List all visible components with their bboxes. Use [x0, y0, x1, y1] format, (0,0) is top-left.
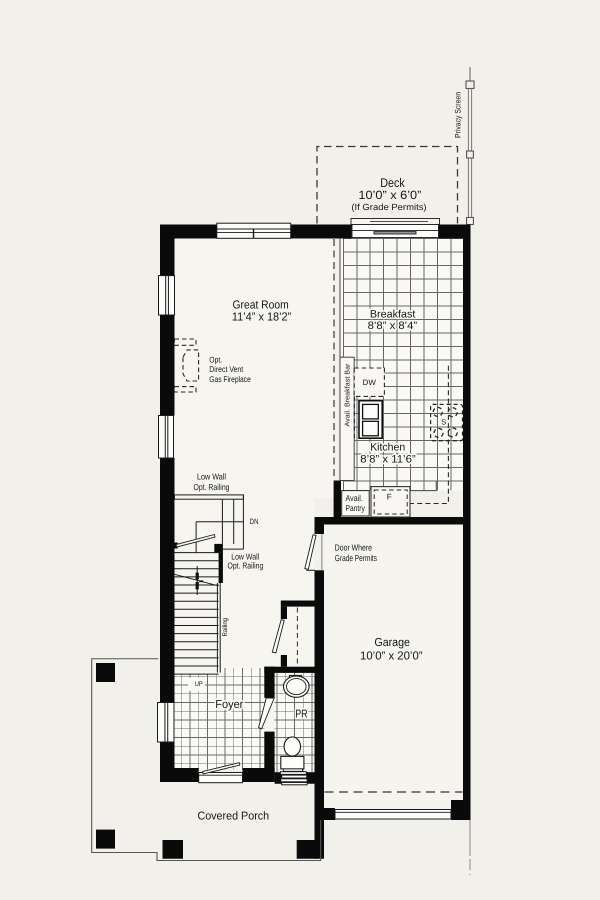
svg-text:Railing: Railing [222, 618, 229, 637]
svg-text:PR: PR [295, 709, 307, 721]
svg-text:S: S [441, 417, 446, 426]
svg-text:8’8” x 11’6”: 8’8” x 11’6” [360, 454, 416, 466]
svg-text:DW: DW [363, 378, 377, 387]
svg-text:Kitchen: Kitchen [370, 441, 405, 453]
svg-text:DN: DN [250, 517, 259, 526]
svg-text:F: F [387, 492, 392, 501]
svg-text:Pantry: Pantry [346, 503, 366, 513]
svg-text:Privacy Screen: Privacy Screen [454, 92, 463, 138]
svg-text:Gas Fireplace: Gas Fireplace [209, 374, 251, 384]
svg-text:Low Wall: Low Wall [197, 472, 226, 482]
svg-text:10’0” x 6’0”: 10’0” x 6’0” [358, 188, 421, 202]
svg-text:Opt.: Opt. [209, 355, 222, 365]
svg-text:Avail.: Avail. [346, 493, 363, 503]
svg-text:Avail. Breakfast Bar: Avail. Breakfast Bar [343, 363, 351, 427]
svg-text:Breakfast: Breakfast [370, 308, 416, 320]
svg-text:Direct Vent: Direct Vent [209, 364, 243, 374]
svg-text:Garage: Garage [374, 636, 410, 649]
svg-text:Door Where: Door Where [335, 543, 372, 553]
svg-text:Opt. Railing: Opt. Railing [228, 560, 264, 570]
svg-text:Opt. Railing: Opt. Railing [194, 482, 230, 492]
svg-text:11’4” x 18’2”: 11’4” x 18’2” [232, 311, 291, 324]
svg-text:8’8” x 8’4”: 8’8” x 8’4” [368, 320, 418, 332]
svg-text:Grade Permits: Grade Permits [335, 553, 378, 563]
svg-text:10’0” x 20’0”: 10’0” x 20’0” [360, 649, 423, 662]
svg-text:(If Grade Permits): (If Grade Permits) [351, 202, 426, 212]
svg-text:Foyer: Foyer [215, 698, 243, 711]
svg-text:UP: UP [195, 681, 203, 688]
svg-text:Covered Porch: Covered Porch [197, 810, 269, 822]
